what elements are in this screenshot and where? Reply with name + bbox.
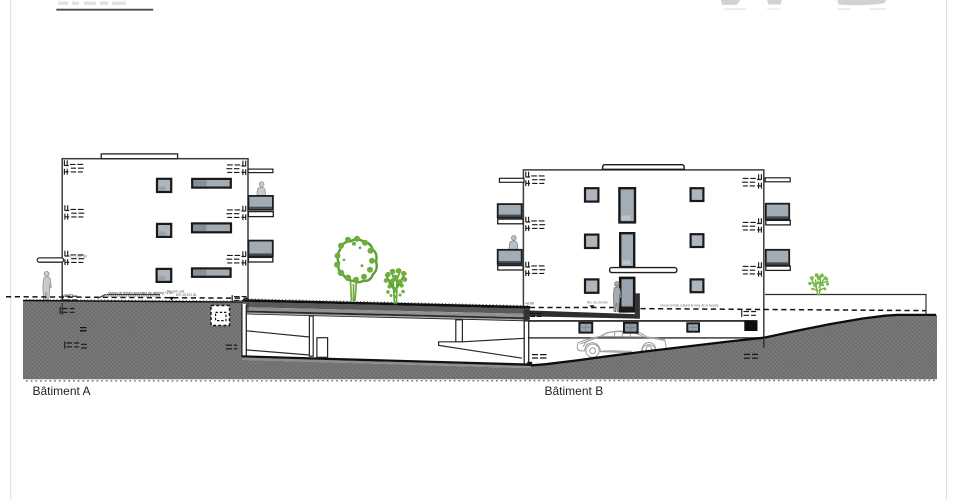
svg-text:Bâtiment A: Bâtiment A [33, 384, 91, 398]
svg-text:670.10 672.30: 670.10 672.30 [176, 293, 197, 297]
svg-text:niveau terrain naturel le long: niveau terrain naturel le long de la fac… [660, 303, 719, 307]
svg-text:+0.00: +0.00 [525, 302, 534, 306]
svg-text:Bâtiment B: Bâtiment B [545, 384, 604, 398]
svg-text:+2.72 niv fini: +2.72 niv fini [68, 255, 87, 259]
svg-text:Niv. du chemin: Niv. du chemin [587, 301, 608, 305]
